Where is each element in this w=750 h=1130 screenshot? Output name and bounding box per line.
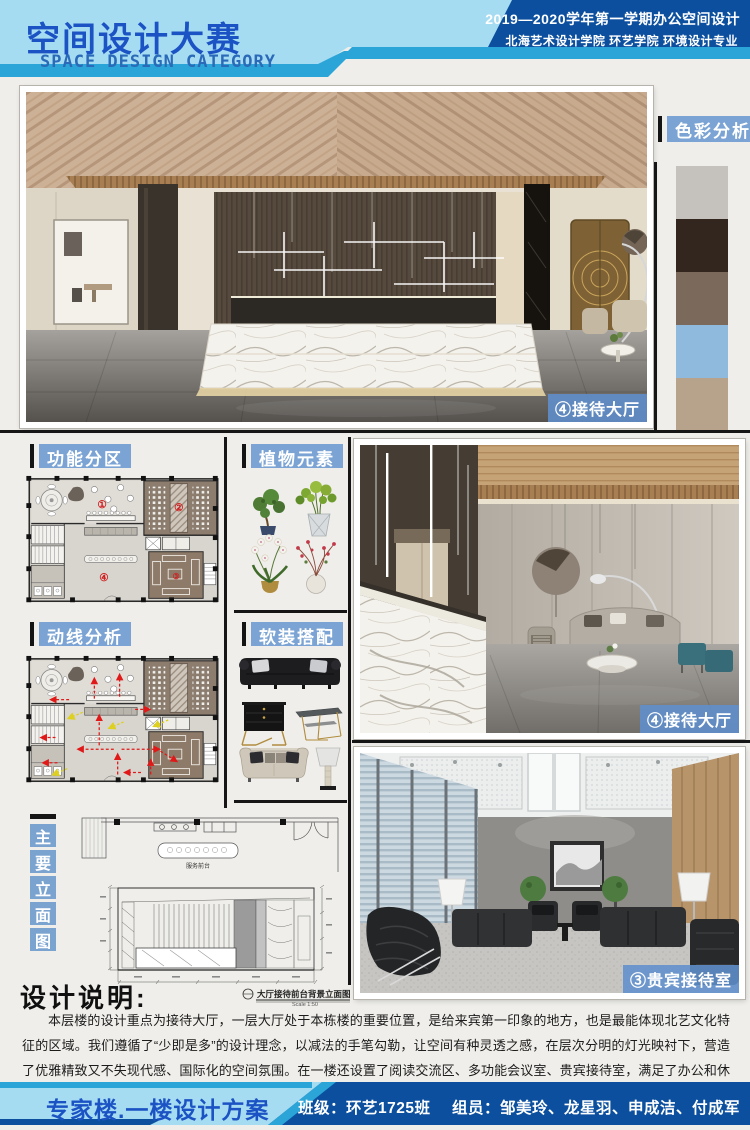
divider-horizontal-renders [352, 740, 750, 743]
label-accent-bar [242, 444, 246, 468]
zone-3-marker: ③ [172, 572, 179, 581]
divider-vertical-left [224, 437, 227, 808]
design-poster: { "header": { "title": "空间设计大赛", "subtit… [0, 0, 750, 1125]
footer-class: 班级：环艺1725班 [298, 1096, 430, 1118]
header-school-line: 北海艺术设计学院 环艺学院 环境设计专业 [505, 32, 738, 49]
elevation-label-char: 要 [30, 850, 56, 873]
label-accent-bar [242, 622, 246, 646]
header-course-line: 2019—2020学年第一学期办公空间设计 [485, 9, 740, 29]
plants-header: 植物元素 [242, 444, 343, 468]
glass-table-image [296, 708, 342, 740]
reception-lounge-frame: ④接待大厅 [354, 439, 745, 739]
color-palette [676, 166, 728, 431]
functional-zoning-header: 功能分区 [30, 444, 131, 468]
furnishing-label: 软装搭配 [251, 622, 343, 646]
elevation-scale: Scale 1:50 [292, 1002, 318, 1006]
vip-room-render [360, 753, 739, 993]
hero-image-frame: ④接待大厅 [20, 86, 653, 428]
label-accent-bar [30, 622, 34, 646]
reception-lounge-render [360, 445, 739, 733]
elevation-label-char: 主 [30, 824, 56, 847]
elevation-drawing: 服务前台 大厅接待前台背景立面图 Scale 1:50 [66, 810, 356, 1006]
circulation-analysis-plan [26, 654, 221, 790]
black-sofa-image [239, 658, 341, 689]
functional-zoning-label: 功能分区 [39, 444, 131, 468]
reception-hall-render [26, 92, 647, 422]
label-accent-bar [30, 444, 34, 468]
color-analysis-header: 色彩分析 [658, 116, 750, 142]
footer-members: 组员：邹美玲、龙星羽、申成洁、付成军 [452, 1096, 740, 1118]
elevation-desk-label: 服务前台 [186, 862, 210, 870]
color-swatch [676, 378, 728, 431]
divider-horizontal-main [0, 430, 750, 433]
vip-room-frame: ③贵宾接待室 [354, 747, 745, 999]
plants-label: 植物元素 [251, 444, 343, 468]
plant-orchid-image [252, 535, 287, 593]
color-swatch [676, 166, 728, 219]
label-accent-bar [658, 116, 662, 142]
circulation-label: 动线分析 [39, 622, 131, 646]
furnishing-header: 软装搭配 [242, 622, 343, 646]
functional-zoning-plan: ① ② ④ ③ [26, 474, 221, 610]
color-swatch [676, 325, 728, 378]
poster-subtitle: SPACE DESIGN CATEGORY [40, 52, 276, 72]
vip-room-label: ③贵宾接待室 [623, 965, 739, 993]
plant-red-sprigs-image [296, 540, 336, 593]
header-banner: 空间设计大赛 SPACE DESIGN CATEGORY 2019—2020学年… [0, 0, 750, 82]
divider-horizontal-furnishing [234, 800, 347, 803]
plant-leafy-vase-image [296, 481, 337, 536]
main-elevation-vertical-label: 主 要 立 面 图 [30, 824, 56, 954]
color-swatch [676, 219, 728, 272]
elevation-label-char: 面 [30, 902, 56, 925]
beige-sofa-image [240, 748, 308, 782]
plant-elements-images [238, 478, 342, 606]
zone-1-marker: ① [97, 499, 107, 511]
furnishing-images [234, 652, 346, 798]
elevation-caption: 大厅接待前台背景立面图 [257, 989, 351, 999]
elevation-label-char: 立 [30, 876, 56, 899]
hero-image-label: ④接待大厅 [548, 394, 647, 422]
black-cabinet-image [242, 702, 286, 745]
divider-horizontal-plants [234, 610, 347, 613]
elevation-label-top-bar [30, 814, 56, 819]
divider-vertical-right [654, 162, 657, 431]
elevation-label-char: 图 [30, 928, 56, 951]
footer-project-title: 专家楼.一楼设计方案 [46, 1091, 269, 1125]
color-analysis-label: 色彩分析 [667, 116, 750, 142]
floor-lamp-image [316, 748, 340, 790]
zone-4-marker: ④ [99, 572, 109, 584]
zone-2-marker: ② [174, 502, 184, 514]
reception-lounge-label: ④接待大厅 [640, 705, 739, 733]
color-swatch [676, 272, 728, 325]
plant-bonsai-image [253, 489, 285, 535]
circulation-header: 动线分析 [30, 622, 131, 646]
